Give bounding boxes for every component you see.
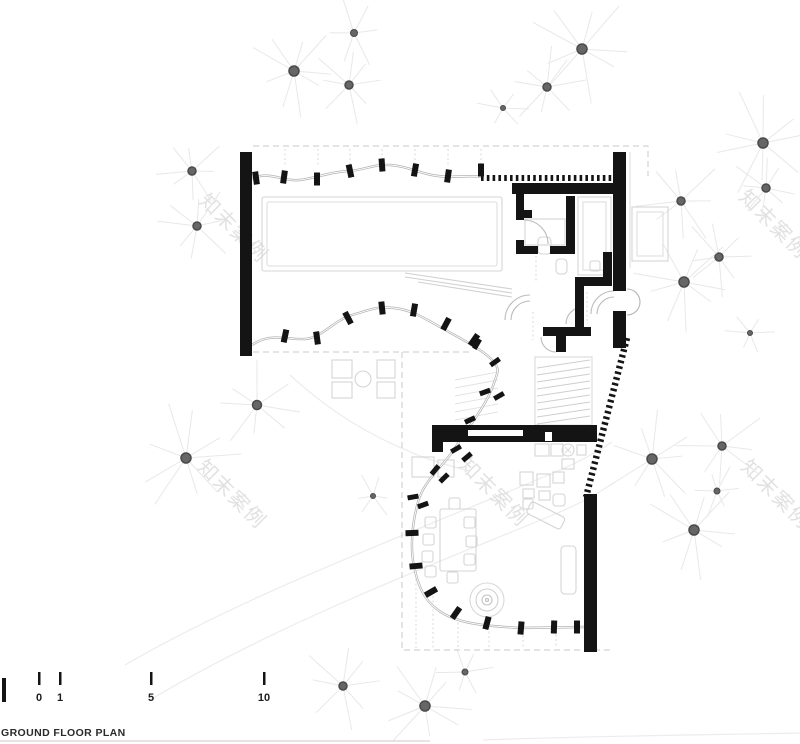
glazing-post (405, 530, 418, 536)
tree-branch (362, 475, 373, 496)
tree-branch (763, 119, 794, 143)
tree-branch (684, 282, 686, 333)
scale-bar-origin-mark (2, 678, 6, 702)
tree-dot (715, 253, 723, 261)
tree-branch (465, 667, 493, 672)
tree-branch (343, 0, 354, 33)
tree-branch (425, 706, 472, 710)
watermark-text: 知末案例 (734, 185, 800, 263)
tree-branch (681, 530, 694, 570)
tree-branch (750, 333, 757, 352)
watermark-text: 知末案例 (454, 453, 532, 531)
scale-label-5: 5 (148, 692, 154, 704)
tree-branch (763, 132, 800, 143)
tree-branch (720, 446, 722, 484)
sofa (561, 546, 576, 594)
furniture-layer (262, 149, 668, 648)
tree-branch (722, 418, 760, 446)
tree-branch (551, 49, 582, 84)
tree-branch (681, 169, 715, 201)
tree-branch (681, 201, 706, 238)
glazing-post (378, 301, 385, 315)
tree-dot (677, 197, 685, 205)
tree-dot (543, 83, 551, 91)
tree-branch (633, 273, 684, 282)
tree-branch (257, 405, 300, 412)
tree-branch (457, 649, 465, 672)
tree (330, 0, 378, 65)
glass-wall-curved (252, 307, 585, 628)
dining-table (422, 498, 477, 583)
tree-dot (345, 81, 353, 89)
tree-branch (717, 143, 763, 153)
tree-branch (611, 459, 652, 485)
tree-dot (748, 331, 753, 336)
glazing-post (482, 616, 491, 630)
floor-plan-drawing: 知末案例知末案例知末案例知末案例知末案例 (0, 0, 800, 744)
tree-branch (309, 655, 343, 686)
glazing-post (407, 494, 419, 501)
tree-dot (188, 167, 196, 175)
tree-branch (186, 454, 241, 458)
tree-branch (373, 496, 387, 515)
tree-branch (650, 504, 694, 530)
tree-branch (694, 492, 729, 530)
tree-branch (717, 467, 730, 491)
tree-branch (186, 438, 220, 458)
tree-branch (670, 495, 694, 530)
terrace (630, 152, 668, 268)
glazing-post (280, 170, 288, 184)
glazing-post (574, 621, 580, 634)
tree-branch (231, 405, 257, 441)
tree-branch (503, 108, 518, 124)
tree-branch (397, 666, 425, 706)
glazing-posts (252, 158, 580, 634)
tree-branch (663, 244, 684, 282)
pool (262, 197, 512, 297)
glazing-post (517, 621, 524, 634)
tree (650, 492, 735, 580)
tree-branch (547, 87, 569, 110)
tree-branch (393, 706, 425, 741)
tree (695, 467, 739, 517)
tree-dot (758, 138, 768, 148)
tree-branch (477, 103, 503, 108)
tree-branch (145, 458, 186, 482)
tree-dot (718, 442, 726, 450)
tree-dot (289, 66, 299, 76)
tree-branch (257, 384, 288, 405)
tree-branch (326, 85, 349, 109)
tree-dot (253, 401, 262, 410)
tree-branch (582, 49, 627, 52)
fireplace (470, 583, 504, 617)
tree-branch (465, 672, 476, 693)
tree-branch (614, 445, 652, 459)
tree-branch (220, 403, 257, 405)
glazing-post (346, 164, 355, 178)
glazing-post (314, 173, 320, 186)
tree-branch (169, 404, 186, 458)
tree-branch (319, 58, 349, 85)
canvas: 知末案例知末案例知末案例知末案例知末案例 (0, 0, 800, 744)
tree (389, 666, 472, 741)
glazing-post (252, 171, 260, 185)
glazing-post (478, 164, 484, 177)
tree-branch (533, 22, 582, 49)
tree-branch (354, 6, 368, 33)
watermark-text: 知末案例 (194, 189, 272, 267)
tree-branch (739, 92, 763, 143)
tree-branch (582, 49, 591, 103)
tree-dot (762, 184, 770, 192)
stairs (455, 357, 592, 425)
tree-branch (192, 171, 211, 201)
east-wall-lower (584, 494, 597, 652)
tree-branch (736, 166, 766, 188)
east-wall-upper (613, 152, 626, 291)
tree-branch (652, 410, 657, 459)
glazing-post (444, 169, 452, 183)
tree-branch (294, 71, 301, 117)
hatch-walls (481, 178, 627, 497)
tree (635, 169, 714, 239)
tree-dot (714, 488, 720, 494)
tree-dot (689, 525, 699, 535)
tree-branch (547, 46, 552, 87)
tree-branch (156, 171, 192, 174)
tree-branch (491, 90, 503, 108)
tree-branch (253, 48, 294, 71)
glazing-post (438, 472, 449, 483)
tree (477, 90, 530, 125)
west-wall (240, 152, 252, 356)
tree-branch (694, 530, 701, 580)
glazing-post (281, 329, 290, 343)
tree-dot (679, 277, 689, 287)
tree-branch (192, 146, 219, 171)
tree-branch (750, 332, 775, 333)
tree (717, 92, 800, 193)
tree-branch (667, 282, 684, 321)
tree-branch (701, 413, 722, 446)
tree-branch (349, 85, 357, 124)
tree (633, 244, 725, 333)
tree (611, 410, 687, 497)
glazing-post (409, 562, 422, 569)
tree-branch (763, 143, 798, 173)
tree-branch (343, 681, 380, 686)
seating-group (332, 360, 395, 398)
tree-dot (577, 44, 587, 54)
tree (692, 224, 752, 297)
glazing-post (424, 586, 438, 598)
tree-branch (349, 80, 381, 85)
tree-branch (155, 458, 186, 505)
tree-branch (389, 706, 425, 721)
tree-branch (719, 257, 722, 297)
tree-dot (501, 106, 506, 111)
scale-label-0: 0 (36, 692, 42, 704)
tree-branch (272, 39, 294, 71)
tree-branch (656, 172, 681, 201)
tree-dot (351, 30, 358, 37)
tree-branch (425, 706, 458, 725)
tree-branch (186, 410, 192, 458)
tree-branch (354, 33, 370, 65)
bench (526, 501, 566, 530)
tree-branch (652, 459, 665, 497)
watermark-text: 知末案例 (192, 455, 270, 533)
tree-branch (708, 491, 717, 517)
scale-bar: 0 1 5 10 (2, 672, 270, 704)
tree-dot (462, 669, 468, 675)
tree-branch (519, 87, 547, 117)
core-north-wall (512, 183, 624, 194)
glazing-post (379, 158, 386, 171)
tree-branch (737, 317, 750, 333)
glazing-post (493, 391, 505, 401)
tree (309, 648, 380, 730)
tree-branch (503, 108, 529, 109)
plan-title: GROUND FLOOR PLAN (1, 727, 126, 739)
tree (358, 475, 387, 515)
glazing-post (551, 620, 557, 633)
tree-branch (719, 256, 752, 257)
glazing-post (411, 163, 419, 177)
tree-branch (554, 11, 582, 49)
tree-dot (181, 453, 191, 463)
tree-branch (721, 414, 722, 446)
tree-branch (725, 331, 750, 333)
tree (725, 317, 775, 352)
tree (220, 360, 300, 441)
tree-branch (684, 247, 723, 282)
tree-branch (150, 444, 186, 458)
tree-branch (343, 686, 352, 730)
scale-label-10: 10 (258, 692, 270, 704)
tree-branch (436, 672, 465, 673)
tree (436, 649, 494, 693)
trees-layer (145, 0, 800, 741)
wc-fixture (556, 259, 567, 274)
watermark-text: 知末案例 (736, 455, 800, 533)
tree-branch (316, 686, 343, 713)
tree-dot (371, 494, 376, 499)
tree-dot (193, 222, 201, 230)
tree-branch (681, 201, 683, 239)
tree-branch (652, 459, 685, 493)
glazing-post (440, 317, 451, 331)
tree-dot (339, 682, 347, 690)
tree (253, 35, 331, 116)
scale-label-1: 1 (57, 692, 63, 704)
tree-dot (420, 701, 430, 711)
tree-dot (647, 454, 657, 464)
tree (319, 52, 381, 124)
tree-branch (191, 226, 197, 258)
